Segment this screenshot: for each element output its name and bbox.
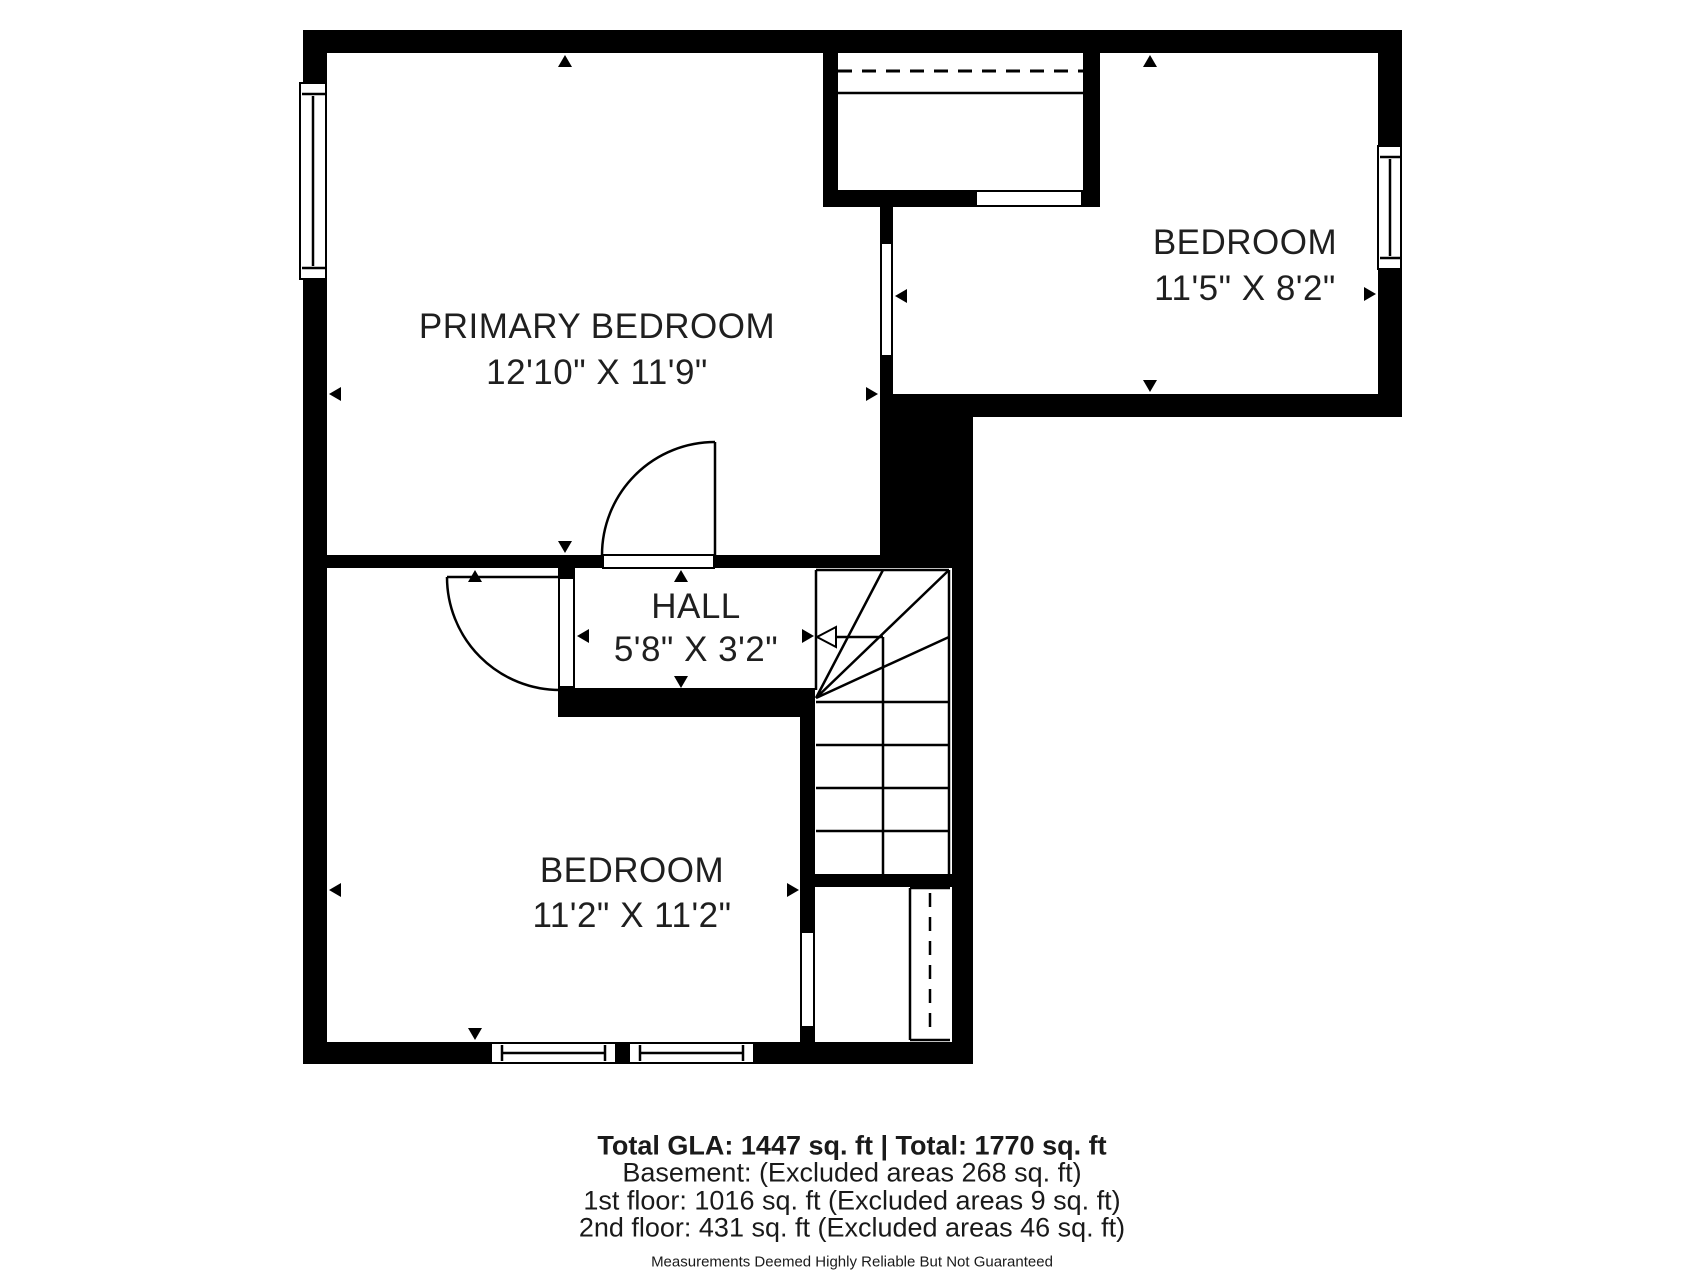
summary-basement: Basement: (Excluded areas 268 sq. ft) xyxy=(622,1158,1081,1189)
room-dims-primary-bedroom: 12'10" X 11'9" xyxy=(486,353,708,393)
measurement-arrow-up-icon xyxy=(1143,55,1157,67)
staircase xyxy=(816,570,949,874)
summary-second-floor: 2nd floor: 431 sq. ft (Excluded areas 46… xyxy=(579,1213,1125,1244)
measurement-arrow-right-icon xyxy=(787,883,799,897)
measurement-arrow-down-icon xyxy=(1143,380,1157,392)
door-arc xyxy=(602,442,715,555)
room-label-bedroom-lower: BEDROOM xyxy=(540,851,724,891)
measurement-arrow-up-icon xyxy=(674,570,688,582)
measurement-arrow-down-icon xyxy=(674,676,688,688)
measurement-arrow-left-icon xyxy=(329,883,341,897)
room-label-hall: HALL xyxy=(651,587,741,627)
measurement-arrow-down-icon xyxy=(468,1028,482,1040)
measurement-arrow-left-icon xyxy=(577,629,589,643)
measurement-arrow-right-icon xyxy=(1364,287,1376,301)
under-stair-room xyxy=(910,888,950,1040)
lower-bedroom-door-swing xyxy=(447,577,560,690)
primary-bedroom-measurement-arrows xyxy=(329,55,878,553)
room-dims-bedroom-upper-right: 11'5" X 8'2" xyxy=(1154,269,1336,309)
room-label-primary-bedroom: PRIMARY BEDROOM xyxy=(419,307,775,347)
summary-disclaimer: Measurements Deemed Highly Reliable But … xyxy=(651,1254,1053,1271)
door-arc xyxy=(447,577,560,690)
measurement-arrow-right-icon xyxy=(866,387,878,401)
measurement-arrow-up-icon xyxy=(558,55,572,67)
room-dims-bedroom-lower: 11'2" X 11'2" xyxy=(532,896,731,936)
plan-linework xyxy=(0,0,1706,1280)
stair-direction-arrow-icon xyxy=(817,627,836,647)
primary-bedroom-door-swing xyxy=(602,442,715,555)
floor-plan-canvas: PRIMARY BEDROOM 12'10" X 11'9" BEDROOM 1… xyxy=(0,0,1706,1280)
room-dims-hall: 5'8" X 3'2" xyxy=(614,630,778,670)
measurement-arrow-down-icon xyxy=(558,541,572,553)
measurement-arrow-left-icon xyxy=(895,289,907,303)
room-label-bedroom-upper-right: BEDROOM xyxy=(1153,223,1337,263)
measurement-arrow-left-icon xyxy=(329,387,341,401)
measurement-arrow-right-icon xyxy=(802,629,814,643)
